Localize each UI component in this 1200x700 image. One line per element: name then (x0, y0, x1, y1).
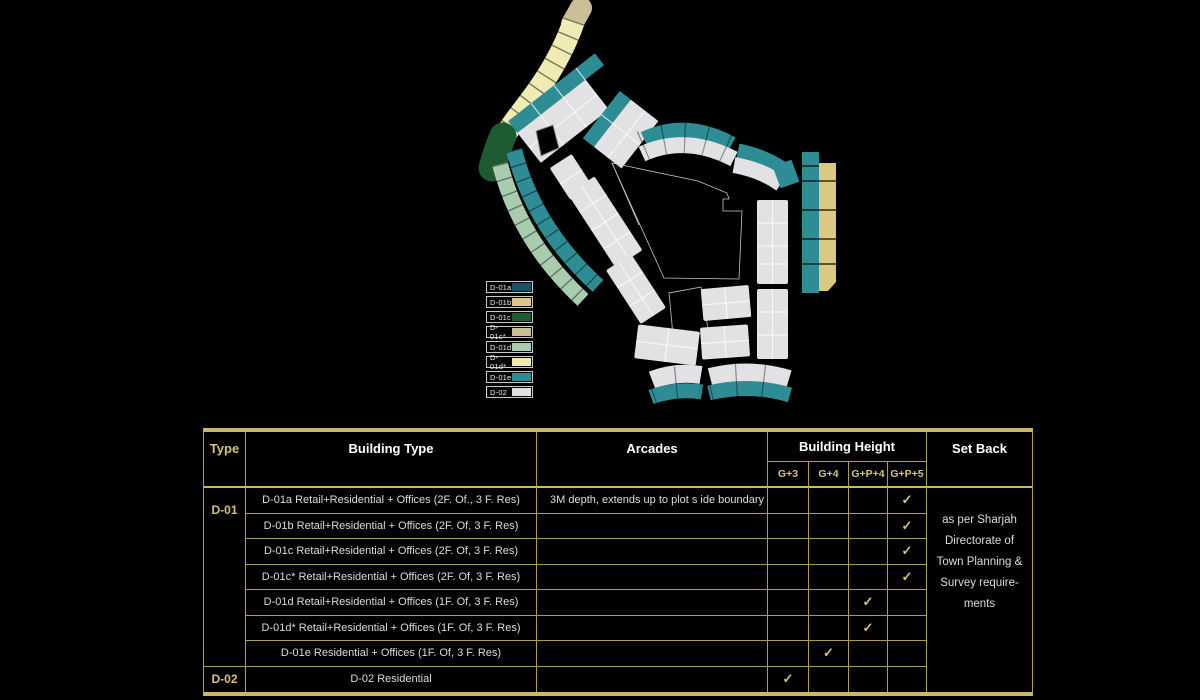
height-cell (768, 565, 809, 591)
arcades-cell (537, 565, 768, 591)
set-back-note-line: Directorate of (927, 531, 1032, 552)
height-cell (809, 565, 849, 591)
building-type-cell: D-01d* Retail+Residential + Offices (1F.… (246, 616, 537, 642)
height-cell (809, 616, 849, 642)
set-back-note-line: Town Planning & (927, 552, 1032, 573)
check-icon: ✓ (849, 616, 888, 642)
legend-swatch-d01c_star (512, 328, 531, 336)
legend-item: D-01a (486, 281, 533, 293)
check-icon: ✓ (888, 539, 927, 565)
block-mid-right (701, 285, 752, 321)
height-option-gp4: G+P+4 (849, 462, 888, 488)
legend-item: D-01d (486, 341, 533, 353)
height-cell (888, 616, 927, 642)
building-type-cell: D-01a Retail+Residential + Offices (2F. … (246, 488, 537, 514)
height-cell (768, 641, 809, 667)
building-type-cell: D-01c* Retail+Residential + Offices (2F.… (246, 565, 537, 591)
legend-item: D-02 (486, 386, 533, 398)
legend-label: D-01d (490, 343, 512, 352)
building-type-column-header: Building Type (246, 432, 537, 488)
legend-label: D-02 (490, 388, 512, 397)
height-option-gp5: G+P+5 (888, 462, 927, 488)
height-cell (888, 641, 927, 667)
legend-item: D-01e (486, 371, 533, 383)
check-icon: ✓ (768, 667, 809, 693)
building-type-cell: D-01d Retail+Residential + Offices (1F. … (246, 590, 537, 616)
height-cell (849, 514, 888, 540)
arc-block-1 (642, 130, 734, 159)
height-cell (849, 641, 888, 667)
height-cell (768, 514, 809, 540)
block-stack-a (568, 176, 643, 267)
type-column-header: Type (204, 432, 246, 488)
legend-swatch-d01d_star (512, 358, 531, 366)
type-group-d02: D-02 (204, 667, 246, 693)
set-back-column-header: Set Back (927, 432, 1032, 488)
legend-label: D-01d* (490, 353, 512, 371)
set-back-note-line: as per Sharjah (927, 510, 1032, 531)
check-icon: ✓ (888, 514, 927, 540)
height-cell (849, 488, 888, 514)
legend-swatch-d01c (512, 313, 531, 321)
height-cell (768, 616, 809, 642)
legend-label: D-01a (490, 283, 512, 292)
legend-swatch-d02 (512, 388, 531, 396)
height-cell (809, 667, 849, 693)
height-cell (849, 539, 888, 565)
legend-label: D-01c (490, 313, 512, 322)
check-icon: ✓ (809, 641, 849, 667)
arcades-cell: 3M depth, extends up to plot s ide bound… (537, 488, 768, 514)
strip-d01c (492, 136, 503, 168)
arcades-cell (537, 641, 768, 667)
block-bottom-row-2 (700, 324, 750, 359)
set-back-note-line: Survey require- (927, 573, 1032, 594)
arcades-cell (537, 539, 768, 565)
legend-label: D-01c* (490, 323, 512, 341)
arcades-cell (537, 616, 768, 642)
building-type-cell: D-01c Retail+Residential + Offices (2F. … (246, 539, 537, 565)
legend-item: D-01b (486, 296, 533, 308)
height-option-g4: G+4 (809, 462, 849, 488)
block-stack-b (606, 254, 666, 324)
check-icon: ✓ (888, 565, 927, 591)
building-type-cell: D-02 Residential (246, 667, 537, 693)
building-type-cell: D-01e Residential + Offices (1F. Of, 3 F… (246, 641, 537, 667)
arcades-column-header: Arcades (537, 432, 768, 488)
height-cell (809, 514, 849, 540)
set-back-note: as per Sharjah Directorate of Town Plann… (927, 488, 1032, 692)
legend-label: D-01e (490, 373, 512, 382)
height-cell (849, 565, 888, 591)
height-cell (809, 539, 849, 565)
height-cell (888, 667, 927, 693)
arcades-cell (537, 514, 768, 540)
set-back-note-line: ments (927, 594, 1032, 615)
legend: D-01aD-01bD-01cD-01c*D-01dD-01d*D-01eD-0… (486, 281, 533, 401)
arc-bottom-1 (651, 374, 702, 397)
height-cell (888, 590, 927, 616)
building-type-cell: D-01b Retail+Residential + Offices (2F. … (246, 514, 537, 540)
block-right-column-top (757, 200, 788, 284)
arcades-cell (537, 667, 768, 693)
legend-item: D-01c (486, 311, 533, 323)
block-right-column-bottom (757, 289, 788, 359)
zoning-table: Type Building Type Arcades Building Heig… (203, 428, 1033, 696)
height-cell (849, 667, 888, 693)
building-height-column-header: Building Height (768, 432, 927, 462)
legend-item: D-01c* (486, 326, 533, 338)
legend-label: D-01b (490, 298, 512, 307)
arc-bottom-2 (709, 372, 790, 395)
check-icon: ✓ (849, 590, 888, 616)
page: D-01aD-01bD-01cD-01c*D-01dD-01d*D-01eD-0… (0, 0, 1200, 700)
height-cell (809, 488, 849, 514)
check-icon: ✓ (888, 488, 927, 514)
height-option-g3: G+3 (768, 462, 809, 488)
legend-swatch-d01e (512, 373, 531, 381)
height-cell (768, 590, 809, 616)
legend-swatch-d01d (512, 343, 531, 351)
strip-right (802, 152, 836, 293)
height-cell (768, 488, 809, 514)
height-cell (809, 590, 849, 616)
arc-block-2 (734, 151, 790, 185)
type-group-d01: D-01 (204, 488, 246, 667)
height-cell (768, 539, 809, 565)
legend-swatch-d01a (512, 283, 531, 291)
legend-item: D-01d* (486, 356, 533, 368)
arcades-cell (537, 590, 768, 616)
legend-swatch-d01b (512, 298, 531, 306)
